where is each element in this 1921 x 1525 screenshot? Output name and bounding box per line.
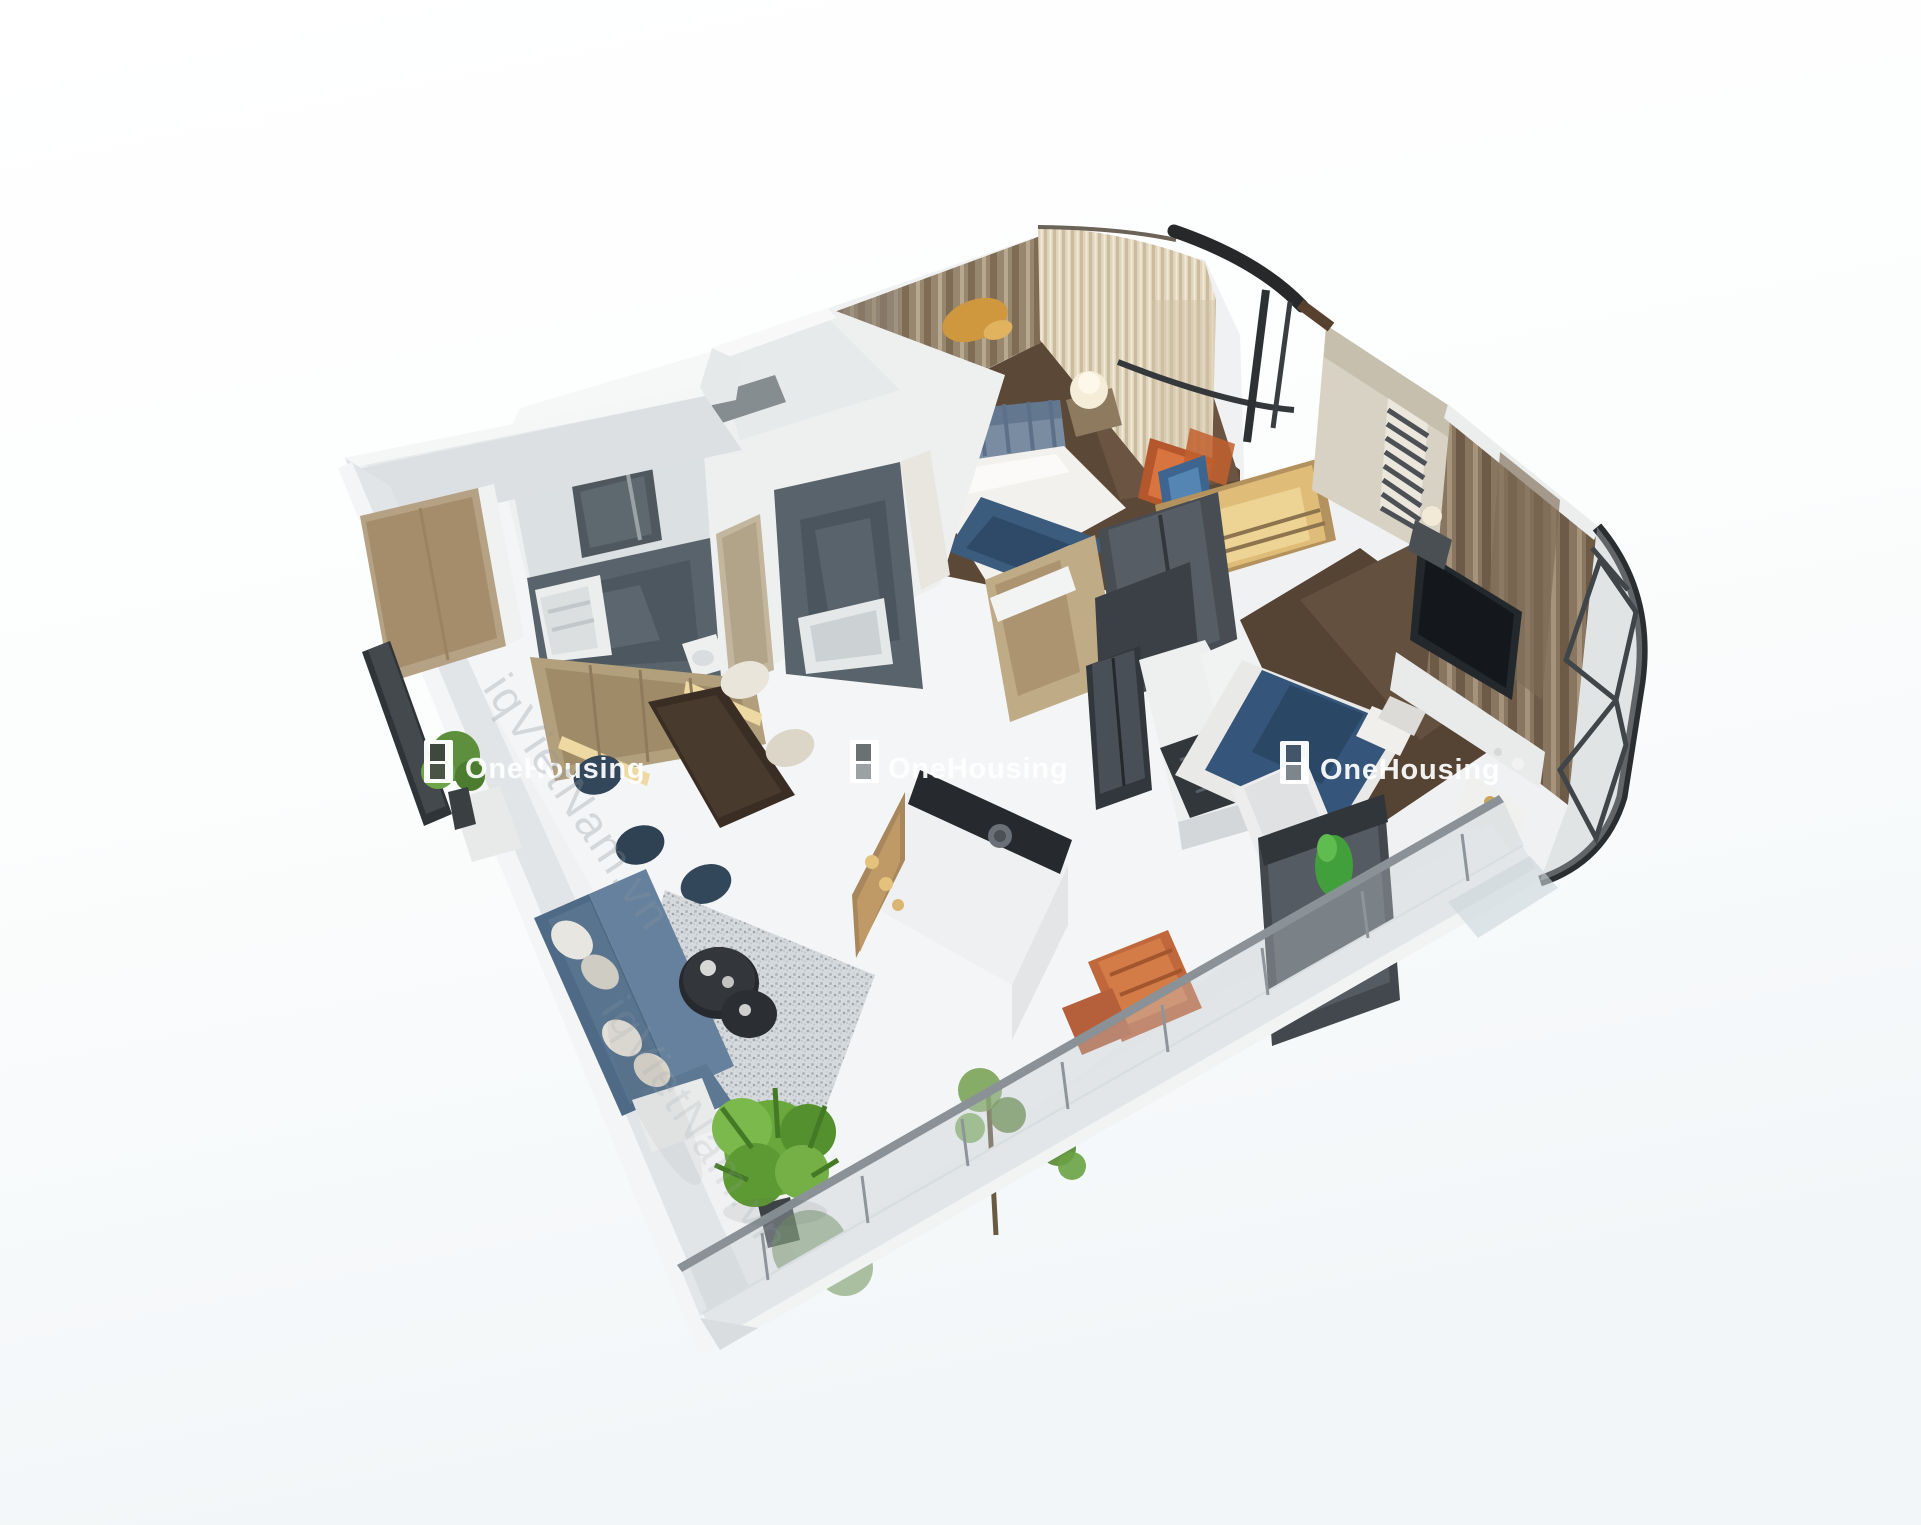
- svg-text:OneHousing: OneHousing: [1320, 754, 1500, 786]
- svg-text:OneHousing: OneHousing: [888, 753, 1068, 785]
